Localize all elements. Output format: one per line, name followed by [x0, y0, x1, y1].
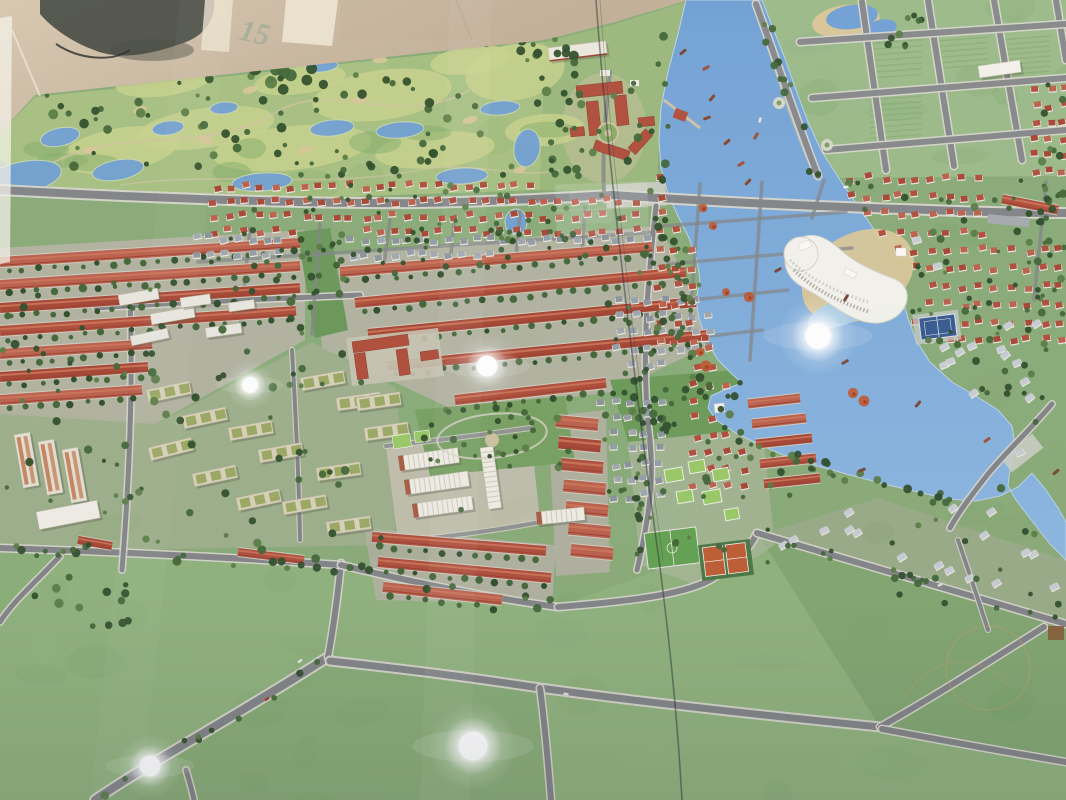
model-photo-canvas: 15 [0, 0, 1066, 800]
photo-dim-overlay [0, 0, 1066, 800]
scale-model-photo: 15 [0, 0, 1066, 800]
glass-reflections [0, 0, 1066, 800]
